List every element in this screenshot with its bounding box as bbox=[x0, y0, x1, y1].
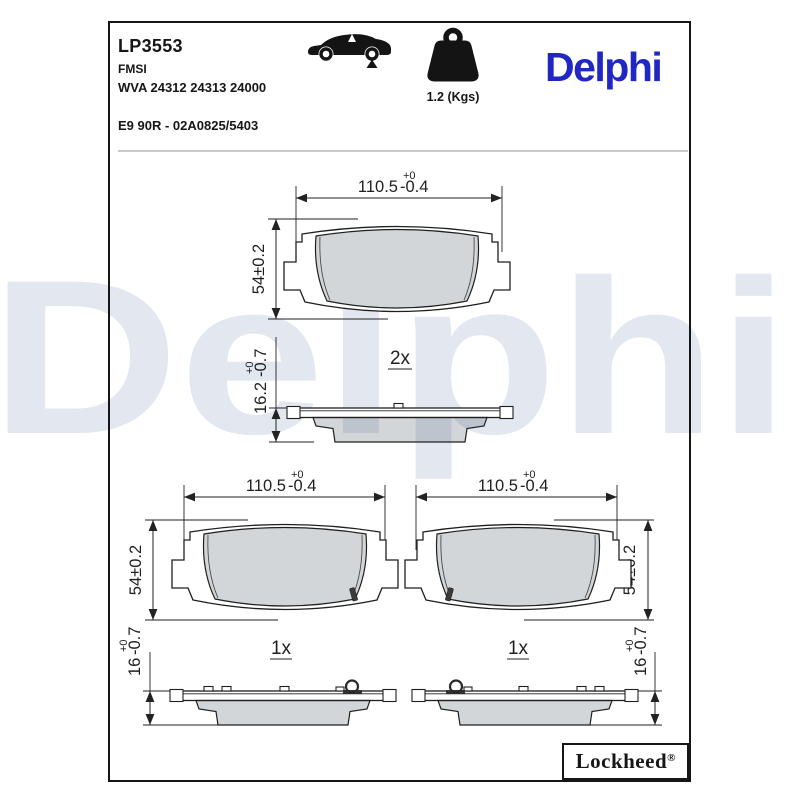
header-divider bbox=[118, 150, 688, 152]
sheet-frame bbox=[108, 21, 691, 782]
registered-mark: ® bbox=[667, 752, 675, 764]
part-number: LP3553 bbox=[118, 36, 183, 57]
wva-numbers: WVA 24312 24313 24000 bbox=[118, 80, 266, 95]
weight-icon bbox=[422, 27, 484, 87]
weight-value: 1.2 (Kgs) bbox=[413, 90, 493, 104]
delphi-logo: Delphi bbox=[545, 44, 661, 91]
homologation: E9 90R - 02A0825/5403 bbox=[118, 118, 258, 133]
datasheet-page: Delphi LP3553 FMSI WVA 24312 24313 24000… bbox=[0, 0, 800, 800]
lockheed-logo: Lockheed bbox=[576, 749, 668, 774]
lockheed-logo-box: Lockheed® bbox=[562, 743, 689, 780]
fmsi-label: FMSI bbox=[118, 62, 147, 76]
rear-axle-marker bbox=[367, 60, 378, 69]
car-rear-axle-icon bbox=[306, 27, 394, 69]
